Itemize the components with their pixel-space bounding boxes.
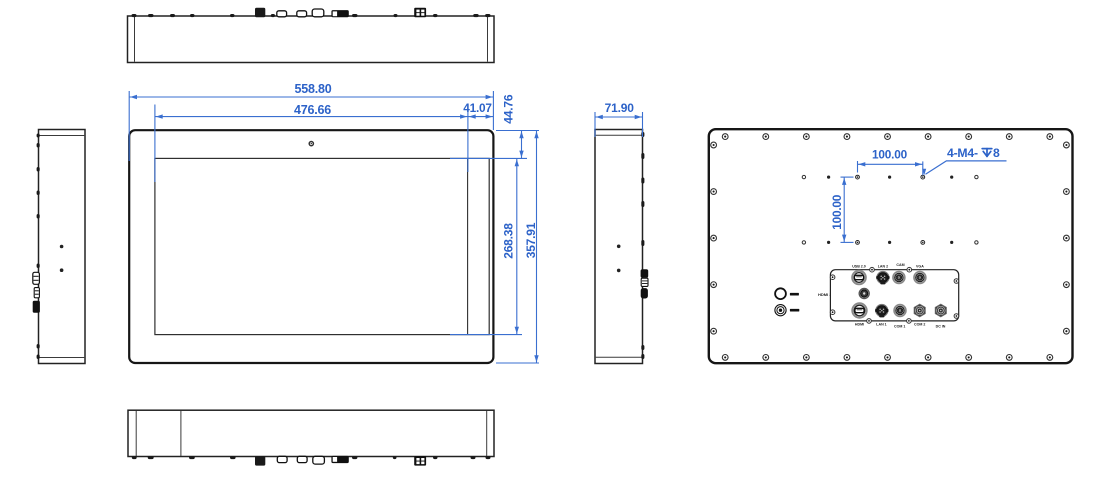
- svg-text:VGA: VGA: [916, 264, 924, 268]
- svg-text:DC IN: DC IN: [936, 324, 946, 328]
- svg-text:558.80: 558.80: [294, 82, 331, 96]
- svg-text:4-M4-: 4-M4-: [947, 146, 978, 160]
- svg-text:100.00: 100.00: [830, 194, 844, 230]
- svg-text:USB 2.0: USB 2.0: [852, 264, 866, 268]
- svg-text:44.76: 44.76: [502, 94, 516, 124]
- svg-text:71.90: 71.90: [605, 101, 635, 115]
- svg-text:268.38: 268.38: [502, 223, 516, 259]
- svg-text:LAN 2: LAN 2: [878, 264, 888, 268]
- svg-text:357.91: 357.91: [524, 222, 538, 258]
- svg-text:41.07: 41.07: [463, 101, 492, 115]
- svg-text:COM 1: COM 1: [894, 324, 905, 328]
- svg-text:476.66: 476.66: [294, 103, 331, 117]
- svg-text:8: 8: [993, 146, 1000, 160]
- svg-text:CAM: CAM: [896, 263, 904, 267]
- svg-text:100.00: 100.00: [872, 148, 908, 162]
- svg-text:HDMI: HDMI: [855, 322, 864, 326]
- svg-text:COM 2: COM 2: [914, 322, 925, 326]
- svg-text:LAN 1: LAN 1: [876, 322, 886, 326]
